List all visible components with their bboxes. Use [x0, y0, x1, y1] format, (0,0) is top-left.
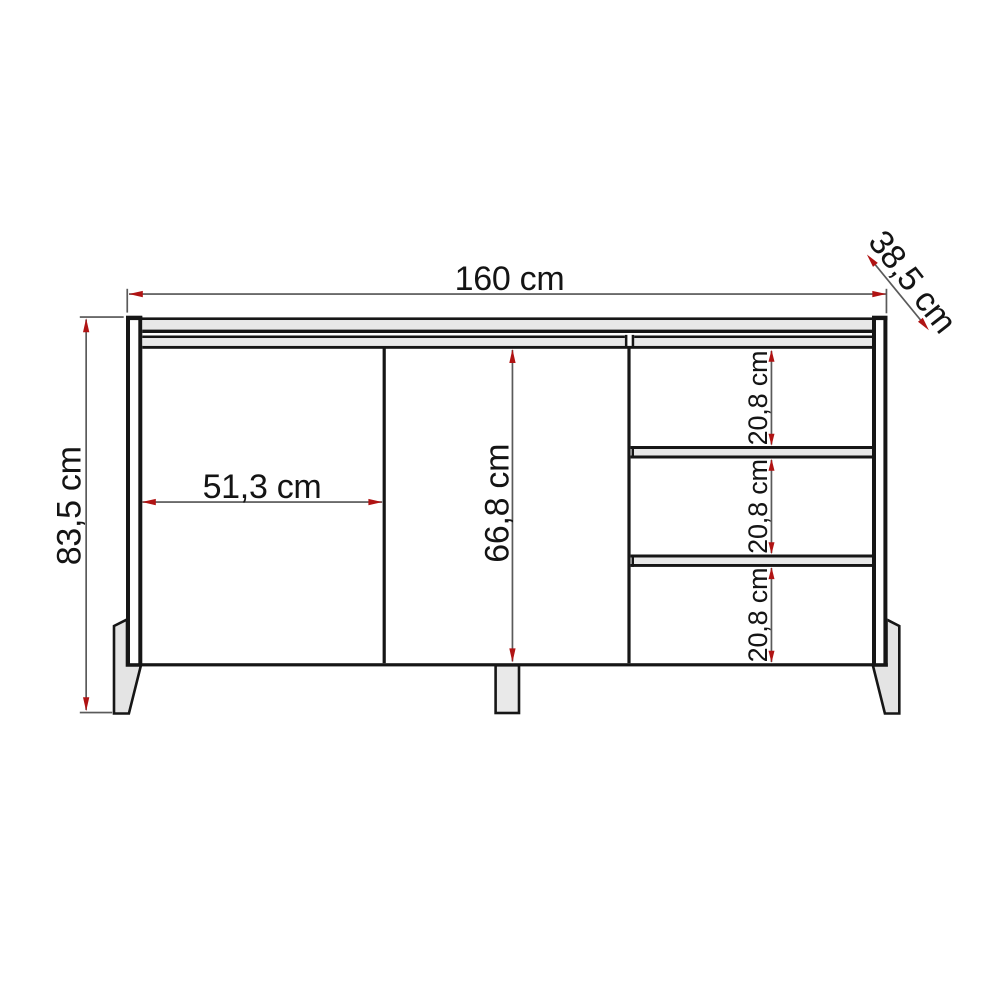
- svg-text:66,8 cm: 66,8 cm: [479, 444, 517, 563]
- svg-text:160 cm: 160 cm: [455, 260, 565, 298]
- svg-text:83,5 cm: 83,5 cm: [51, 446, 89, 565]
- svg-text:20,8 cm: 20,8 cm: [743, 459, 773, 554]
- svg-text:20,8 cm: 20,8 cm: [743, 351, 773, 446]
- svg-text:51,3 cm: 51,3 cm: [203, 468, 322, 506]
- svg-text:20,8 cm: 20,8 cm: [743, 568, 773, 663]
